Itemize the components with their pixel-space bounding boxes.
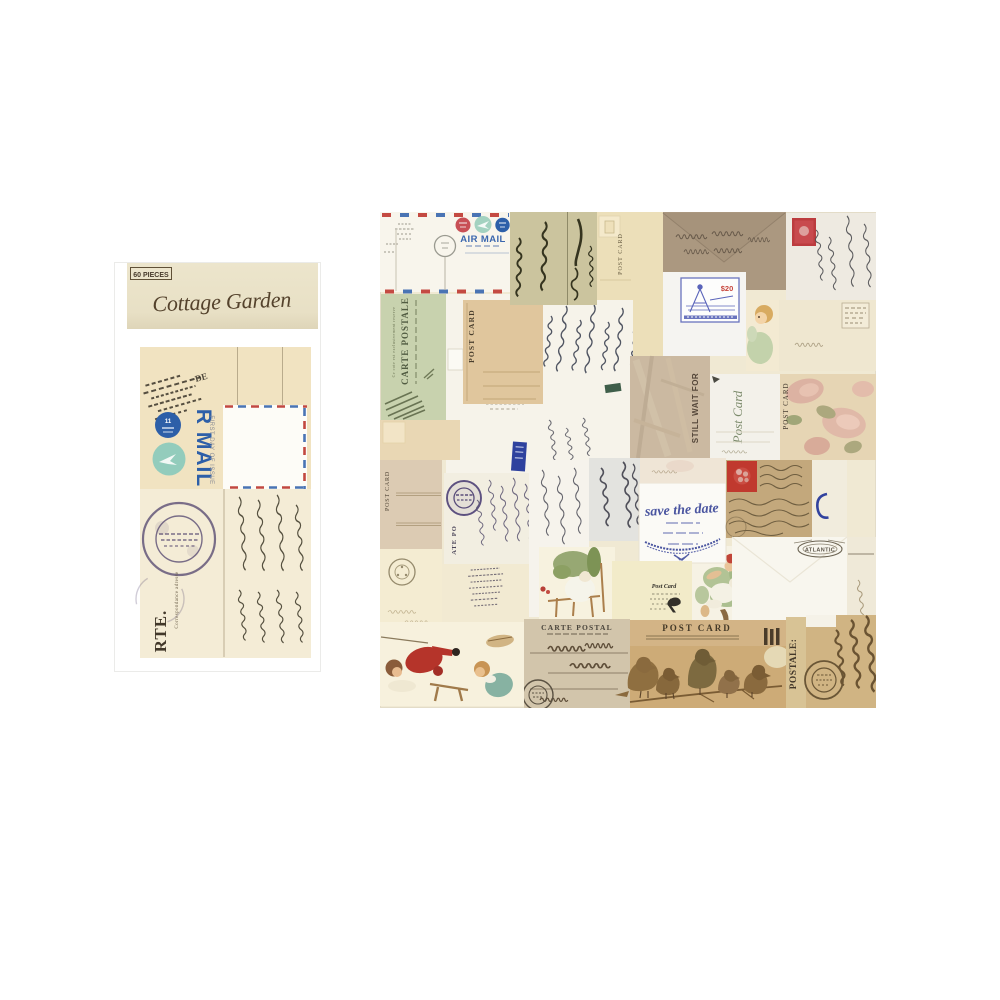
svg-text:Post Card: Post Card	[730, 390, 745, 444]
svg-text:ATLANTIC: ATLANTIC	[805, 548, 835, 554]
svg-text:Correspondance adresse: Correspondance adresse	[175, 571, 180, 629]
svg-text:POST CARD: POST CARD	[782, 382, 790, 429]
svg-text:POST CARD: POST CARD	[467, 309, 476, 363]
svg-text:Ce cote est exclusivement rese: Ce cote est exclusivement reserve	[391, 307, 396, 378]
svg-text:FIRST DAY OF ISSUE: FIRST DAY OF ISSUE	[208, 415, 214, 484]
svg-text:11: 11	[165, 419, 172, 425]
svg-text:POST CARD: POST CARD	[385, 471, 391, 511]
svg-text:$20: $20	[721, 284, 734, 293]
svg-text:POST CARD: POST CARD	[618, 233, 624, 275]
svg-text:RTE.: RTE.	[151, 610, 170, 653]
svg-text:CARTE POSTALE: CARTE POSTALE	[400, 297, 410, 385]
svg-text:POSTALE:: POSTALE:	[789, 639, 799, 690]
svg-text:POST CARD: POST CARD	[662, 623, 732, 633]
svg-text:AIR MAIL: AIR MAIL	[460, 234, 505, 245]
svg-text:CARTE POSTAL: CARTE POSTAL	[541, 623, 613, 632]
svg-text:Cottage Garden: Cottage Garden	[152, 287, 292, 317]
svg-text:Post Card: Post Card	[652, 584, 678, 590]
svg-text:STILL WAIT FOR: STILL WAIT FOR	[691, 373, 700, 443]
svg-text:ATE PO: ATE PO	[451, 525, 458, 555]
svg-text:60 PIECES: 60 PIECES	[133, 272, 169, 279]
